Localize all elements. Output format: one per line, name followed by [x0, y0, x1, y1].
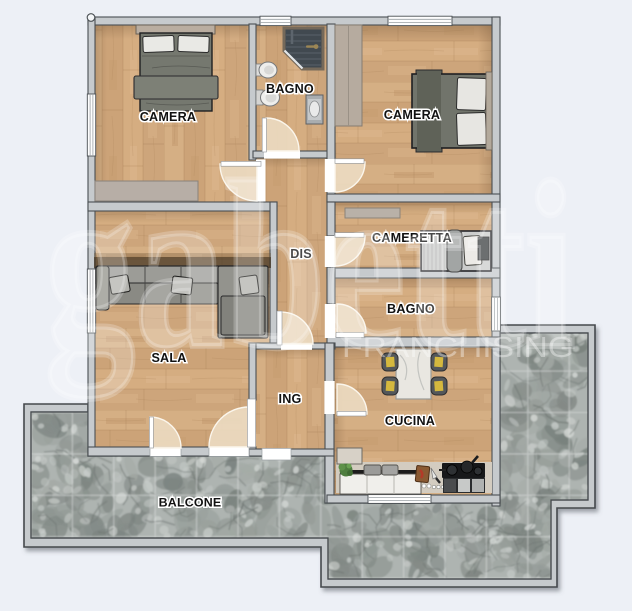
svg-text:CUCINA: CUCINA [385, 414, 435, 428]
svg-text:CAMERA: CAMERA [384, 108, 440, 122]
svg-text:BALCONE: BALCONE [159, 496, 222, 510]
svg-text:CAMERA: CAMERA [140, 110, 196, 124]
svg-text:FRANCHISING: FRANCHISING [342, 332, 574, 364]
svg-text:BAGNO: BAGNO [266, 82, 314, 96]
